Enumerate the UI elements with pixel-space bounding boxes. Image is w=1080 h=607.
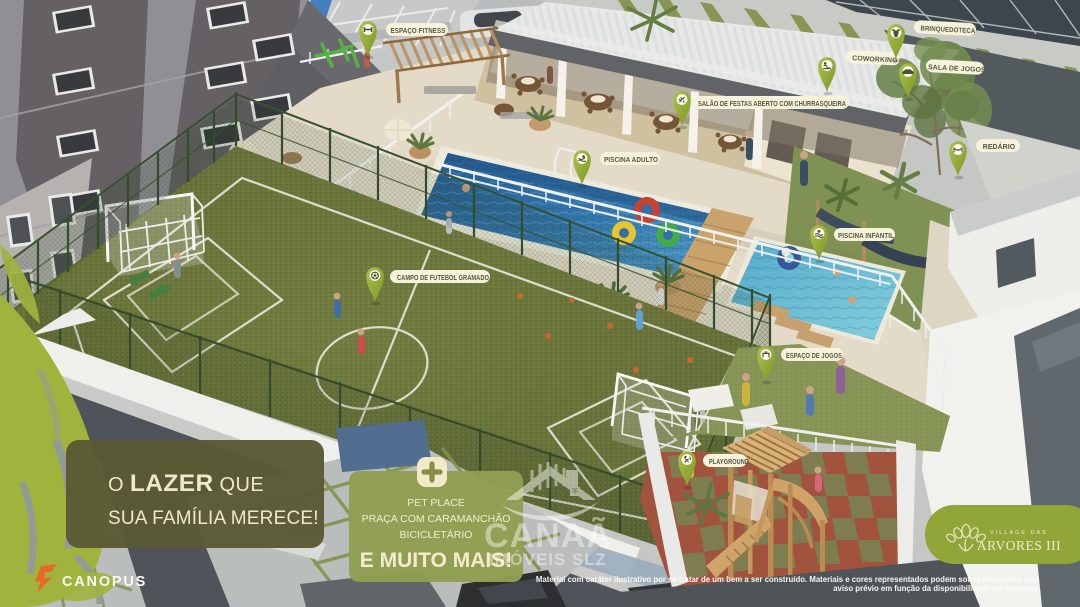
svg-text:REDÁRIO: REDÁRIO — [983, 142, 1016, 151]
svg-text:PISCINA ADULTO: PISCINA ADULTO — [604, 157, 658, 164]
svg-text:PLAYGROUND: PLAYGROUND — [709, 459, 749, 466]
svg-text:ESPAÇO FITNESS: ESPAÇO FITNESS — [391, 28, 446, 35]
svg-text:CAMPO DE FUTEBOL GRAMADO: CAMPO DE FUTEBOL GRAMADO — [397, 275, 489, 282]
svg-text:SALÃO DE FESTAS ABERTO COM CHU: SALÃO DE FESTAS ABERTO COM CHURRASQUEIRA — [698, 99, 846, 108]
svg-text:PISCINA INFANTIL: PISCINA INFANTIL — [838, 233, 894, 240]
svg-text:ESPAÇO DE JOGOS: ESPAÇO DE JOGOS — [786, 353, 842, 360]
